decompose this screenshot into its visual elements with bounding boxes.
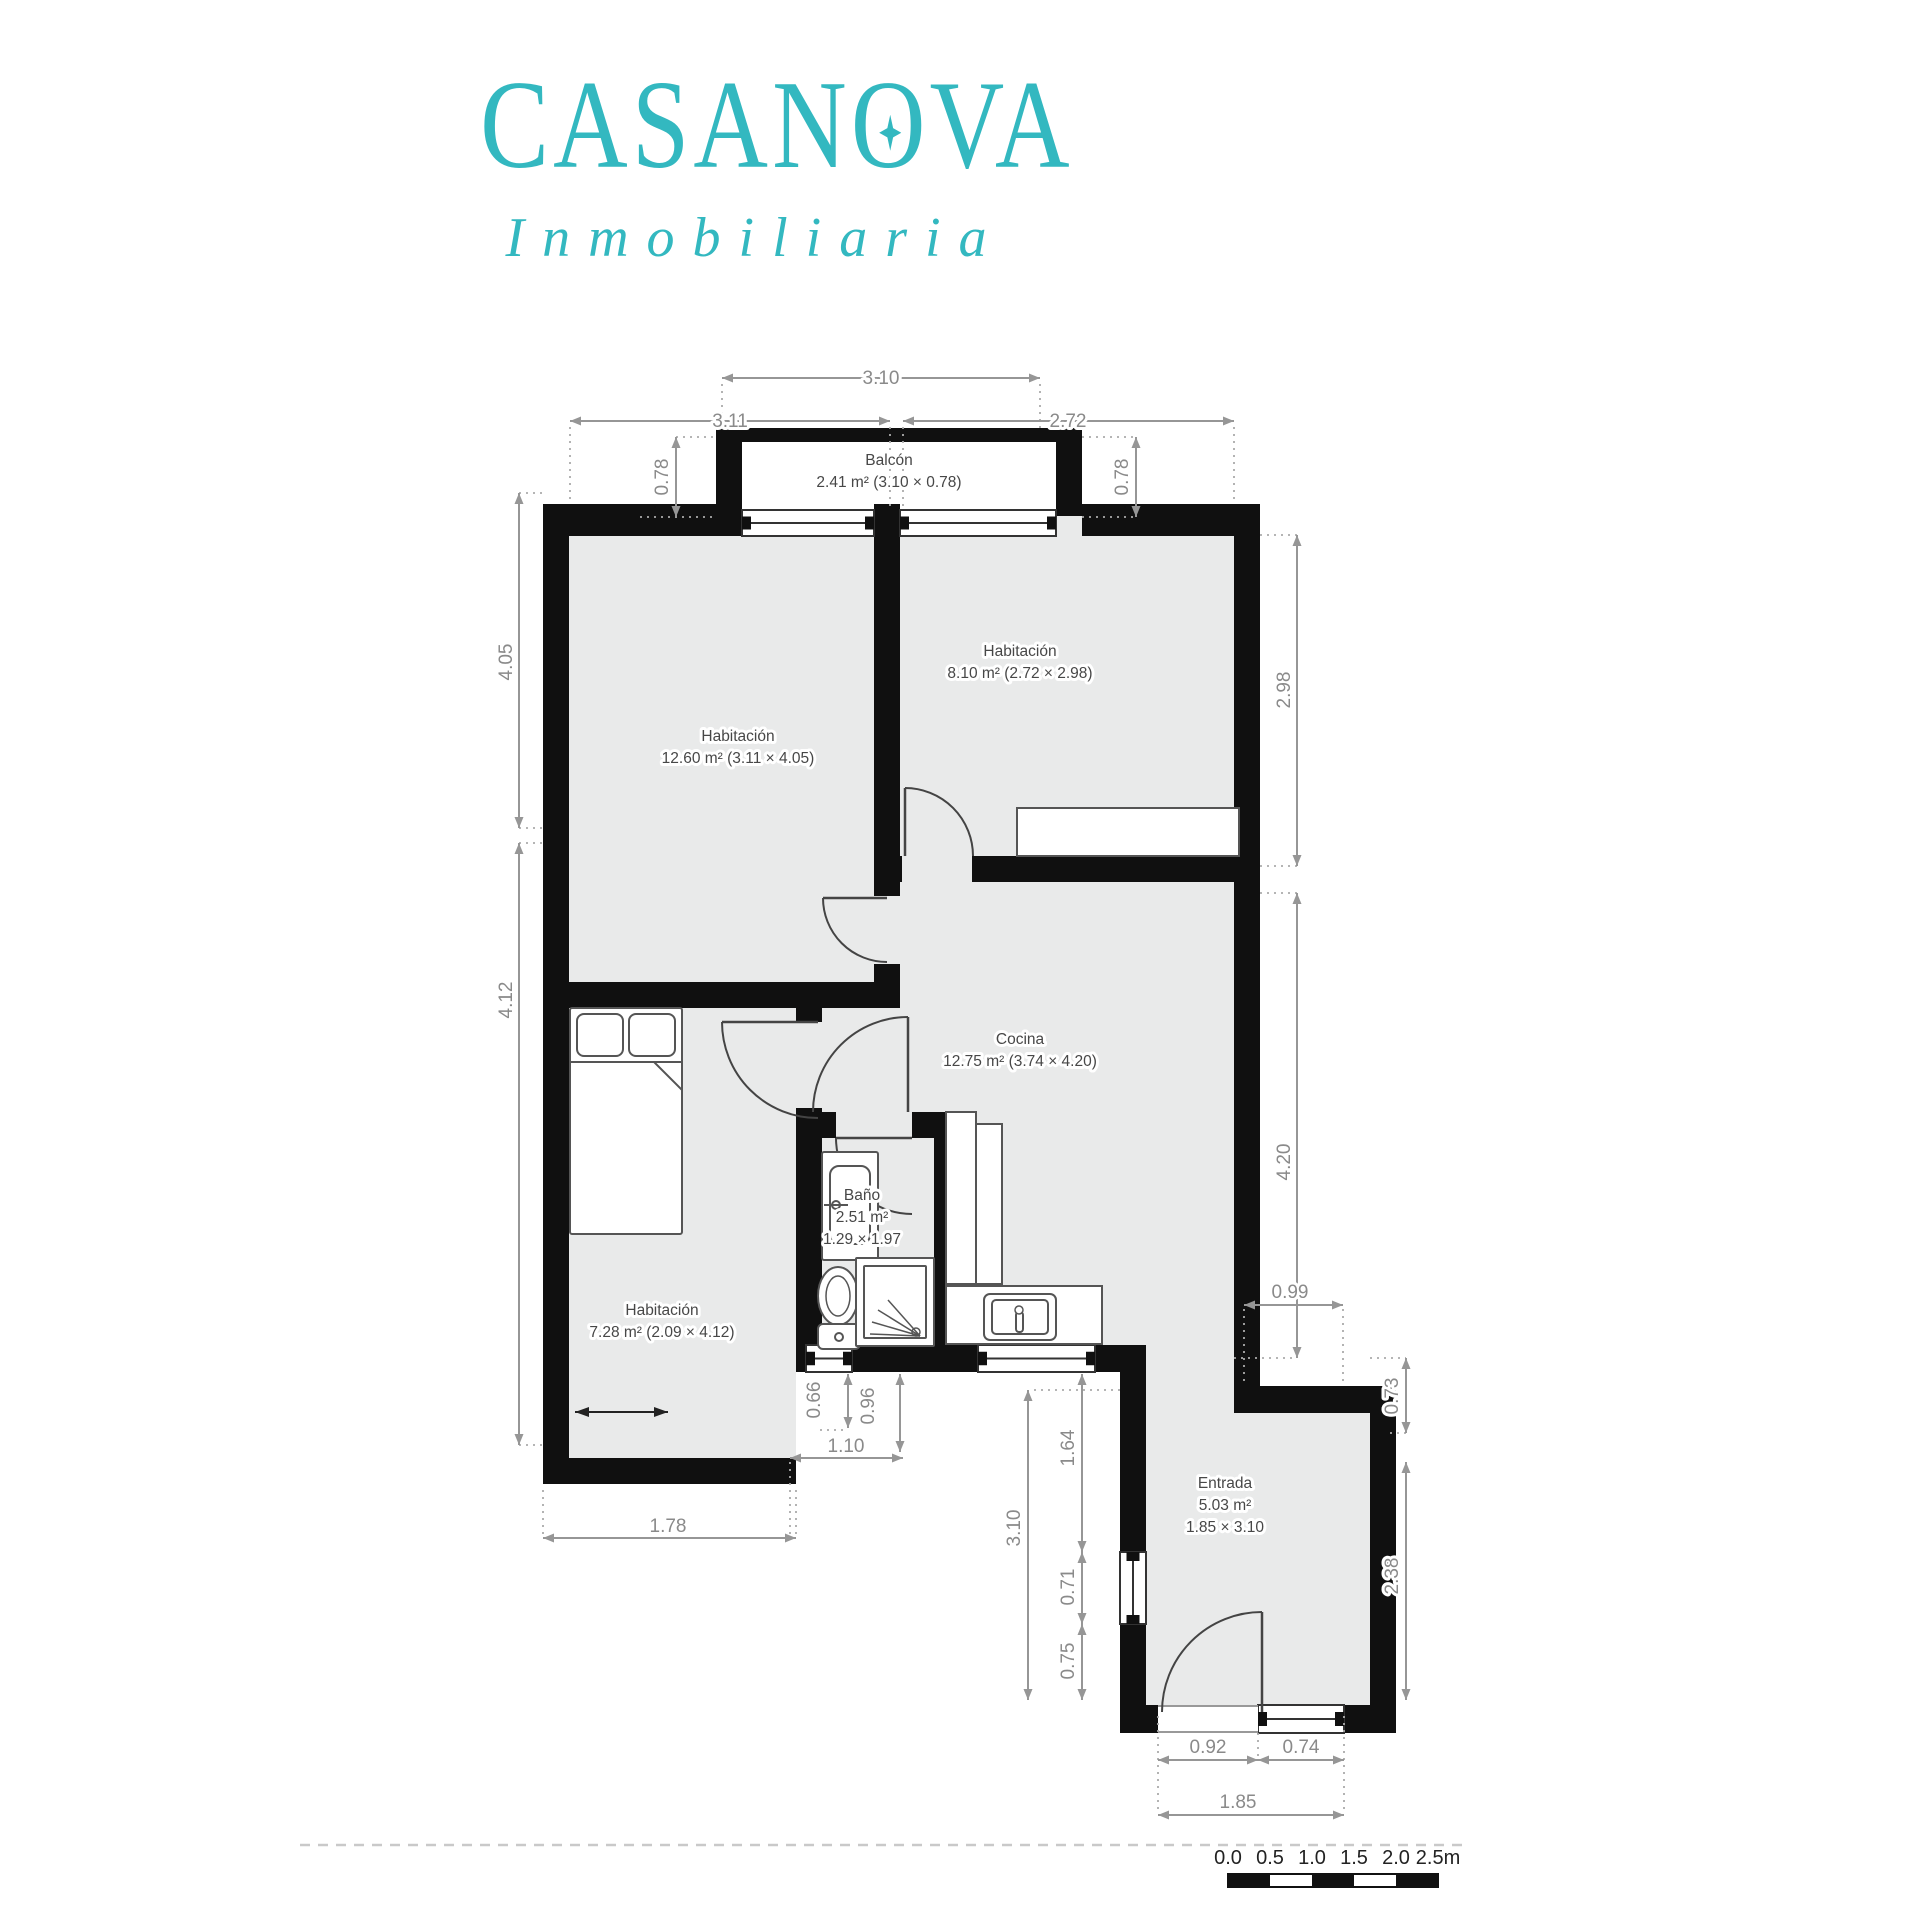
svg-text:0.71: 0.71 [1058, 1569, 1079, 1606]
svg-text:0.78: 0.78 [652, 459, 673, 496]
svg-text:1.10: 1.10 [828, 1436, 865, 1457]
svg-text:Habitación: Habitación [625, 1302, 698, 1319]
svg-text:1.0: 1.0 [1298, 1847, 1326, 1869]
dimension-1.85: 1.85 [1158, 1792, 1344, 1820]
scale-bar: 0.00.51.01.52.02.5m [1214, 1847, 1460, 1887]
dimension-0.92: 0.92 [1158, 1737, 1258, 1765]
svg-text:2.41 m² (3.10 × 0.78): 2.41 m² (3.10 × 0.78) [816, 474, 961, 491]
svg-text:3.10: 3.10 [863, 368, 900, 389]
svg-text:2.38: 2.38 [1382, 1558, 1403, 1595]
svg-text:2.72: 2.72 [1050, 411, 1087, 432]
svg-text:2.98: 2.98 [1274, 672, 1295, 709]
svg-text:1.64: 1.64 [1058, 1429, 1079, 1466]
svg-text:4.05: 4.05 [496, 644, 517, 681]
svg-text:Balcón: Balcón [865, 452, 912, 469]
svg-text:4.12: 4.12 [496, 982, 517, 1019]
svg-text:0.5: 0.5 [1256, 1847, 1284, 1869]
svg-text:12.60 m² (3.11 × 4.05): 12.60 m² (3.11 × 4.05) [662, 750, 815, 767]
svg-text:Baño: Baño [844, 1187, 880, 1204]
svg-text:7.28 m² (2.09 × 4.12): 7.28 m² (2.09 × 4.12) [589, 1324, 734, 1341]
svg-text:0.96: 0.96 [858, 1388, 879, 1425]
svg-text:1.29 × 1.97: 1.29 × 1.97 [823, 1231, 901, 1248]
svg-text:0.92: 0.92 [1190, 1737, 1227, 1758]
dimension-0.66: 0.66 [804, 1374, 853, 1428]
svg-text:Habitación: Habitación [701, 728, 774, 745]
svg-text:4.20: 4.20 [1274, 1144, 1295, 1181]
svg-text:3.10: 3.10 [1004, 1510, 1025, 1547]
svg-text:1.85: 1.85 [1220, 1792, 1257, 1813]
svg-text:Cocina: Cocina [996, 1031, 1045, 1048]
dimension-2.98: 2.98 [1274, 535, 1302, 866]
svg-text:0.0: 0.0 [1214, 1847, 1242, 1869]
dimension-0.75: 0.75 [1058, 1624, 1087, 1700]
svg-text:0.78: 0.78 [1112, 459, 1133, 496]
svg-text:0.99: 0.99 [1272, 1282, 1309, 1303]
dimension-1.78: 1.78 [543, 1516, 796, 1543]
svg-text:1.5: 1.5 [1340, 1847, 1368, 1869]
svg-text:1.85 × 3.10: 1.85 × 3.10 [1186, 1519, 1264, 1536]
svg-text:2.0: 2.0 [1382, 1847, 1410, 1869]
dimension-0.71: 0.71 [1058, 1552, 1087, 1624]
svg-text:8.10 m² (2.72 × 2.98): 8.10 m² (2.72 × 2.98) [947, 665, 1092, 682]
svg-text:2.51 m²: 2.51 m² [836, 1209, 889, 1226]
svg-text:1.78: 1.78 [650, 1516, 687, 1537]
dimension-0.74: 0.74 [1258, 1737, 1344, 1765]
svg-text:0.74: 0.74 [1283, 1737, 1320, 1758]
page: { "brand": { "name": "CASANOVA", "taglin… [0, 0, 1919, 1919]
dimension-1.10: 1.10 [790, 1436, 903, 1463]
dimension-4.05: 4.05 [496, 493, 524, 828]
svg-text:0.73: 0.73 [1382, 1378, 1403, 1415]
dimension-1.64: 1.64 [1058, 1374, 1087, 1552]
floor-plan: 3.103.112.720.780.784.054.122.984.200.99… [0, 0, 1919, 1919]
svg-text:12.75 m² (3.74 × 4.20): 12.75 m² (3.74 × 4.20) [943, 1053, 1097, 1070]
dimension-3.10: 3.10 [722, 368, 1040, 389]
svg-text:2.5m: 2.5m [1416, 1847, 1460, 1869]
dimension-3.10: 3.10 [1004, 1390, 1033, 1700]
svg-text:Habitación: Habitación [983, 643, 1056, 660]
svg-text:3.11: 3.11 [712, 411, 748, 432]
svg-text:5.03 m²: 5.03 m² [1199, 1497, 1252, 1514]
dimension-0.96: 0.96 [858, 1374, 905, 1452]
dimension-4.12: 4.12 [496, 843, 524, 1445]
svg-text:0.66: 0.66 [804, 1382, 825, 1419]
svg-text:Entrada: Entrada [1198, 1475, 1253, 1492]
svg-text:0.75: 0.75 [1058, 1643, 1079, 1680]
